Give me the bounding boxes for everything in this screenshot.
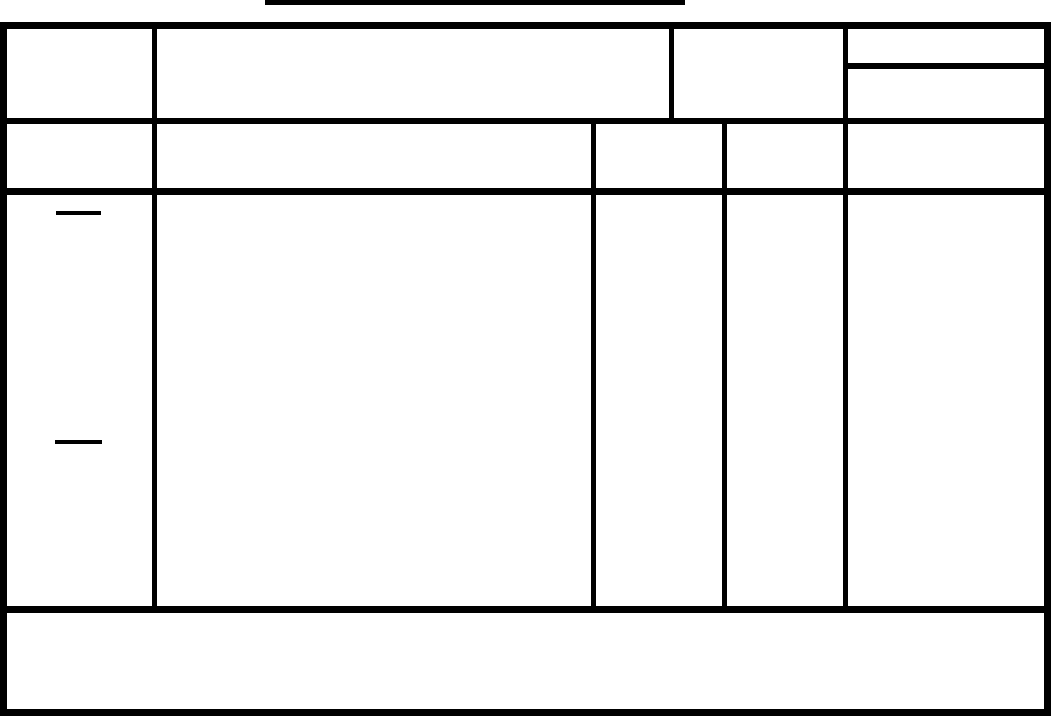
- header1-corner-cell-bottom: [848, 69, 1044, 118]
- body-col-5: [848, 195, 1044, 606]
- table-left-border: [0, 22, 7, 716]
- title-underline: [265, 0, 685, 5]
- body-col-2: [157, 195, 591, 606]
- header1-cell-left: [7, 29, 152, 118]
- header1-corner-cell-top: [848, 29, 1044, 63]
- header2-col-5: [848, 124, 1044, 188]
- header2-col-2: [157, 124, 591, 188]
- header1-cell-mid: [674, 29, 843, 118]
- header2-col-4: [727, 124, 843, 188]
- ditto-dash-1: [56, 211, 101, 215]
- footer-cell: [7, 613, 1044, 709]
- table-right-border: [1044, 22, 1051, 716]
- header1-cell-wide: [157, 29, 669, 118]
- header2-col-3: [596, 124, 722, 188]
- body-col-3: [596, 195, 722, 606]
- body-col-4: [727, 195, 843, 606]
- body-footer-divider: [0, 606, 1051, 613]
- table-bottom-border: [0, 709, 1051, 716]
- header2-col-1: [7, 124, 152, 188]
- ditto-dash-2: [55, 440, 102, 444]
- form-sheet: [0, 0, 1051, 718]
- body-col-1: [7, 195, 152, 606]
- header-body-divider: [0, 188, 1051, 195]
- table-top-border: [0, 22, 1051, 29]
